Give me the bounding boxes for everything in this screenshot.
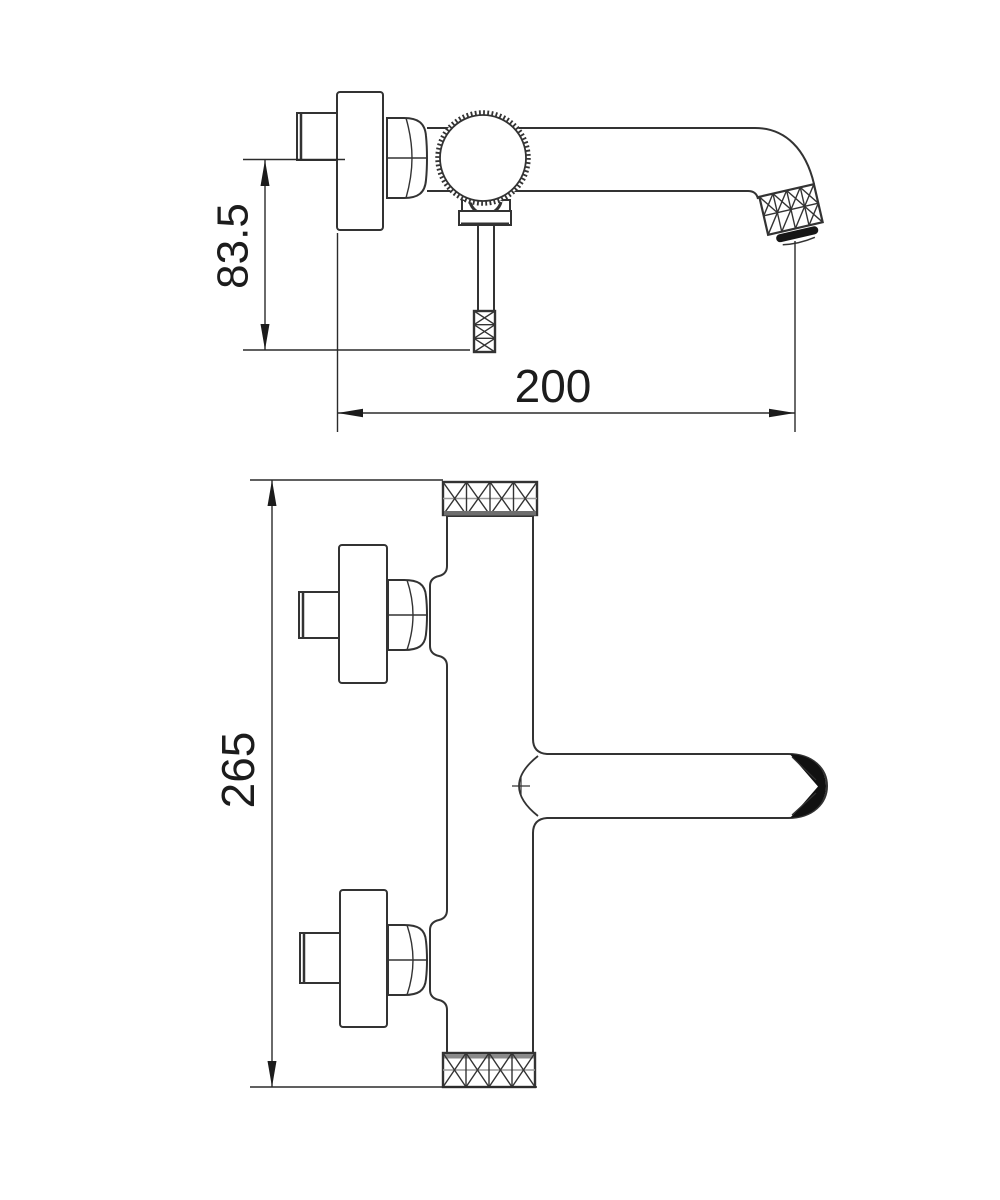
wall-flange-front-bottom <box>340 890 387 1027</box>
faucet-technical-drawing: 83.5 200 265 <box>0 0 1000 1200</box>
mounting-nut-front-top <box>388 580 427 650</box>
mounting-nut-side <box>387 118 427 198</box>
dim-label-200: 200 <box>515 360 592 412</box>
top-knurl-cap <box>443 482 537 516</box>
inlet-nipple-side <box>297 113 337 160</box>
top-wall-connection <box>299 545 427 683</box>
mounting-nut-front-bottom <box>388 925 427 995</box>
dim-arrow-down <box>268 1061 277 1087</box>
faucet-body-front <box>430 516 827 1053</box>
front-view <box>299 482 827 1087</box>
dim-label-265: 265 <box>212 732 264 809</box>
faucet-technical-drawing-page: 83.5 200 265 <box>0 0 1000 1200</box>
dim-label-83-5: 83.5 <box>209 203 258 289</box>
dimension-200: 200 <box>338 233 796 432</box>
dim-arrow-right <box>769 409 795 418</box>
dim-arrow-up <box>261 160 270 186</box>
handle-stem <box>478 225 494 311</box>
wall-flange-front-top <box>339 545 387 683</box>
handle-grip-knurl <box>474 311 495 352</box>
dim-arrow-left <box>338 409 364 418</box>
spout-aerator-knurl <box>759 184 826 249</box>
valve-cap-knurled <box>437 112 529 204</box>
bottom-knurl-cap <box>443 1053 535 1087</box>
inlet-nipple-front-bottom <box>300 933 340 983</box>
side-view <box>297 92 826 352</box>
dim-arrow-up <box>268 480 277 506</box>
bottom-wall-connection <box>300 890 427 1027</box>
wall-flange-side <box>337 92 383 230</box>
inlet-nipple-front-top <box>299 592 339 638</box>
dim-arrow-down <box>261 324 270 350</box>
